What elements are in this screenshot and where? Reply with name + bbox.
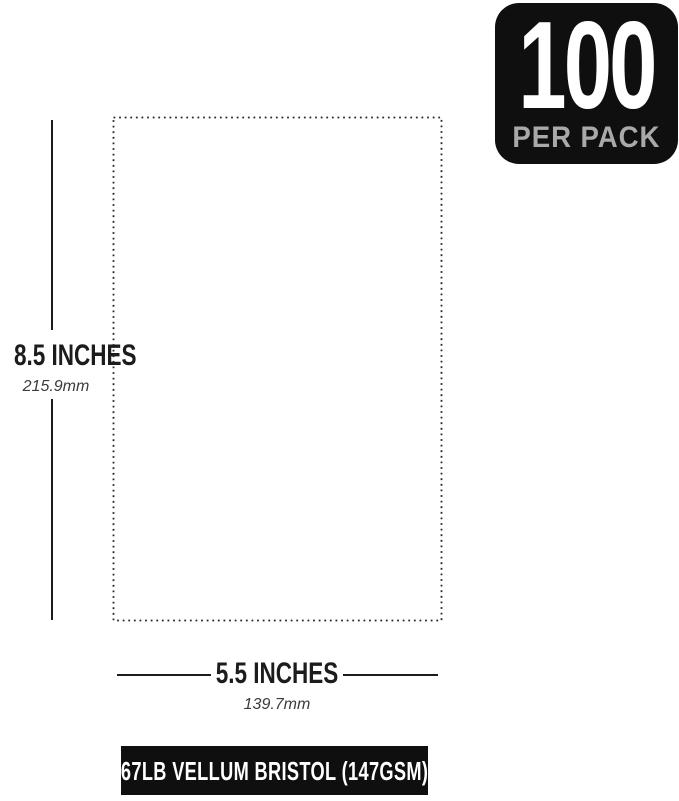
material-label-text: 67LB VELLUM BRISTOL (147GSM) xyxy=(121,758,428,784)
height-mm-text: 215.9mm xyxy=(0,379,112,395)
height-dimension-line-lower xyxy=(51,399,53,620)
width-mm-text: 139.7mm xyxy=(113,697,441,713)
height-label: 8.5 INCHES 215.9mm xyxy=(0,341,112,395)
pack-count-label: PER PACK xyxy=(513,123,661,153)
width-inches-text: 5.5 INCHES xyxy=(154,659,400,689)
pack-count: 100 xyxy=(518,16,654,118)
per-pack-badge: 100 PER PACK xyxy=(495,3,678,164)
height-dimension-line-upper xyxy=(51,120,53,330)
sheet-dotted-outline xyxy=(112,116,443,622)
width-label: 5.5 INCHES 139.7mm xyxy=(113,659,441,713)
dotted-rectangle xyxy=(114,118,442,621)
product-infographic: 100 PER PACK 8.5 INCHES 215.9mm 5.5 INCH… xyxy=(0,0,679,801)
material-label-bar: 67LB VELLUM BRISTOL (147GSM) xyxy=(121,746,428,795)
height-inches-text: 8.5 INCHES xyxy=(14,341,98,371)
